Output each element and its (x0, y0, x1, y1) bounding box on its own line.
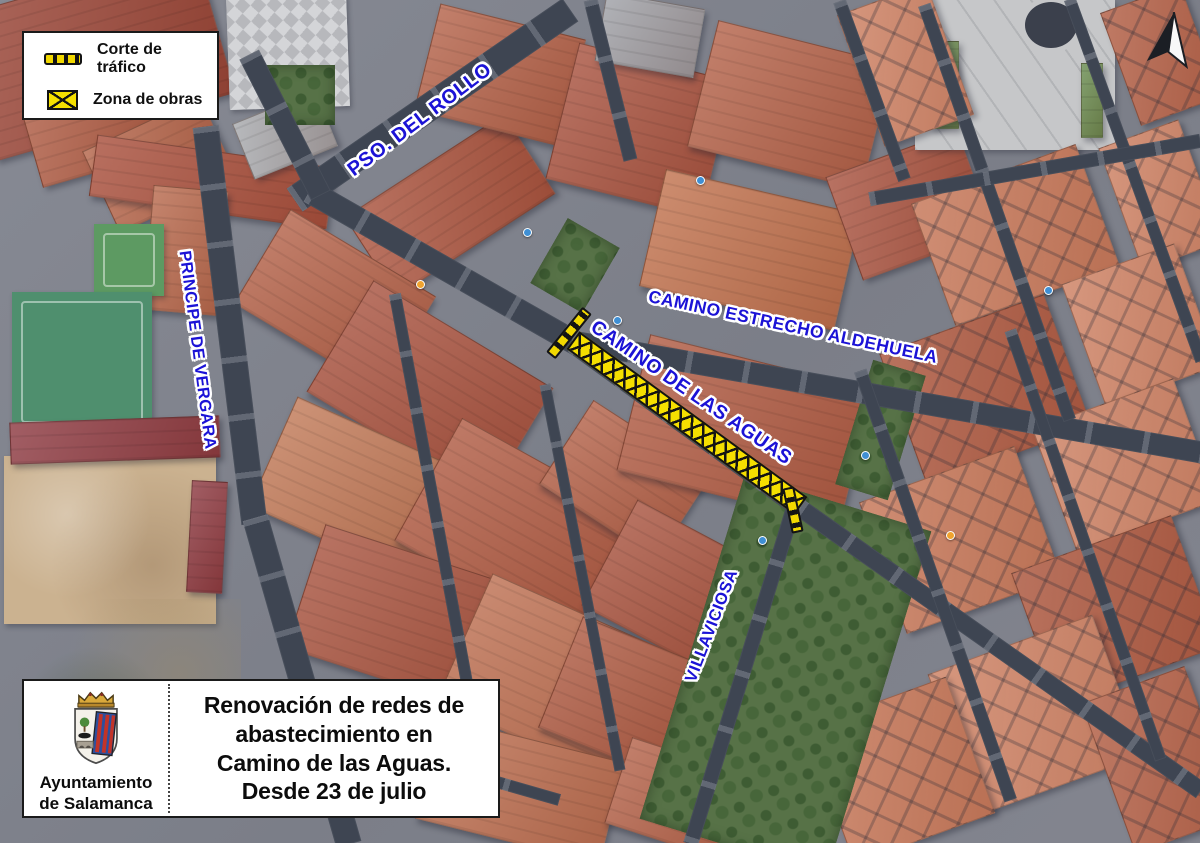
work-zone-icon (47, 90, 78, 110)
map-poi-dot (861, 451, 870, 460)
org-name-line1: Ayuntamiento (40, 773, 153, 793)
map-canvas: PSO. DEL ROLLO PRINCIPE DE VERGARA CAMIN… (0, 0, 1200, 843)
map-building-block (9, 415, 220, 464)
map-poi-dot (523, 228, 532, 237)
north-arrow-icon (1139, 7, 1200, 74)
map-building-block (186, 480, 228, 594)
notice-line-1: Renovación de redes de (204, 691, 464, 720)
map-poi-dot (758, 536, 767, 545)
notice-line-2: abastecimiento en (235, 720, 432, 749)
legend-label-work-zone: Zona de obras (93, 91, 202, 109)
map-poi-dot (613, 316, 622, 325)
map-sports-court (12, 292, 152, 432)
notice-box-text: Renovación de redes de abastecimiento en… (170, 681, 498, 816)
map-poi-dot (696, 176, 705, 185)
map-sports-court (94, 224, 164, 296)
map-poi-dot (1044, 286, 1053, 295)
map-poi-dot (416, 280, 425, 289)
legend-item-work-zone: Zona de obras (44, 90, 203, 110)
map-trees (530, 218, 619, 313)
legend-item-traffic-cut: Corte de tráfico (44, 41, 203, 77)
legend: Corte de tráfico Zona de obras (22, 31, 219, 120)
notice-box: Ayuntamiento de Salamanca Renovación de … (22, 679, 500, 818)
salamanca-crest-icon (65, 687, 127, 767)
org-name-line2: de Salamanca (39, 794, 152, 814)
traffic-cut-icon (44, 53, 82, 65)
notice-line-4: Desde 23 de julio (242, 777, 427, 806)
notice-line-3: Camino de las Aguas. (217, 749, 451, 778)
map-poi-dot (946, 531, 955, 540)
legend-label-traffic-cut: Corte de tráfico (97, 41, 203, 77)
notice-box-org: Ayuntamiento de Salamanca (24, 681, 168, 816)
